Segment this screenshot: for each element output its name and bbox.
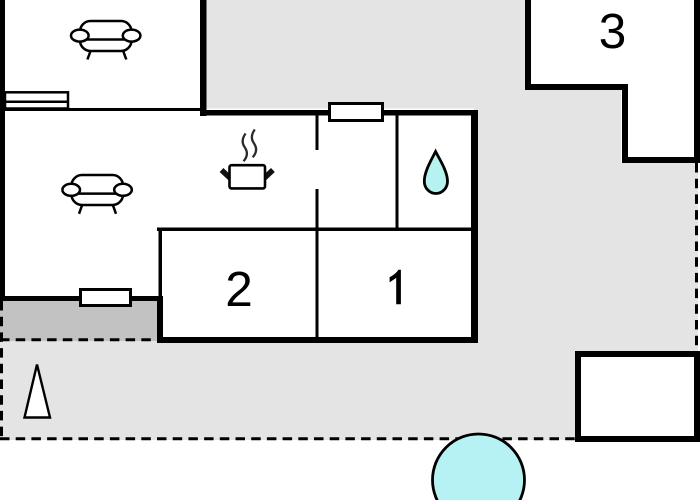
svg-text:3: 3	[599, 4, 627, 59]
svg-text:2: 2	[225, 262, 253, 317]
